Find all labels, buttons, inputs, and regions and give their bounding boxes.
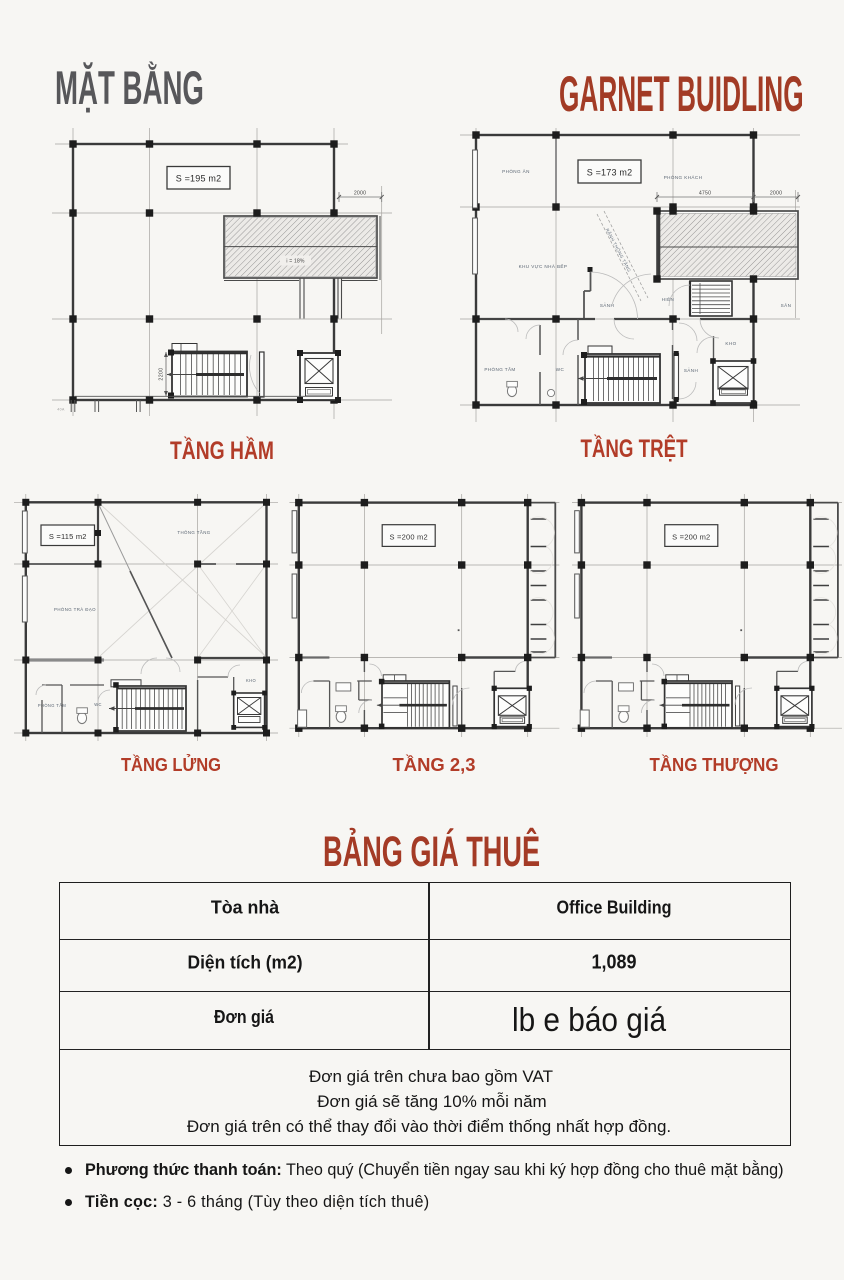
svg-text:WC: WC bbox=[94, 702, 102, 707]
svg-text:KHO: KHO bbox=[246, 678, 256, 683]
svg-text:THÔNG TẦNG: THÔNG TẦNG bbox=[177, 530, 210, 535]
svg-text:i = 18%: i = 18% bbox=[286, 259, 305, 265]
svg-text:WC: WC bbox=[556, 367, 565, 372]
svg-text:2000: 2000 bbox=[770, 191, 782, 197]
svg-text:PHÒNG KHÁCH: PHÒNG KHÁCH bbox=[664, 174, 703, 180]
svg-text:PHÒNG TẮM: PHÒNG TẮM bbox=[484, 365, 515, 372]
svg-text:RÃNH THÔNG TẦNG: RÃNH THÔNG TẦNG bbox=[605, 228, 632, 274]
svg-text:KHU VỰC NHÀ BẾP: KHU VỰC NHÀ BẾP bbox=[519, 263, 568, 269]
svg-text:4750: 4750 bbox=[699, 191, 711, 197]
svg-text:SÂN: SÂN bbox=[781, 302, 792, 308]
svg-text:40A: 40A bbox=[57, 408, 65, 412]
svg-text:2000: 2000 bbox=[354, 191, 366, 197]
svg-text:SẢNH: SẢNH bbox=[684, 367, 698, 373]
svg-text:2200: 2200 bbox=[159, 367, 165, 380]
svg-text:KHO: KHO bbox=[725, 341, 736, 346]
svg-text:S =115 m2: S =115 m2 bbox=[49, 532, 87, 541]
svg-text:PHÒNG ĂN: PHÒNG ĂN bbox=[502, 168, 530, 174]
svg-text:PHÒNG TRÀ ĐẠO: PHÒNG TRÀ ĐẠO bbox=[54, 607, 96, 612]
svg-text:S =195 m2: S =195 m2 bbox=[176, 174, 222, 184]
svg-text:HIÊN: HIÊN bbox=[662, 295, 675, 302]
svg-text:S =173 m2: S =173 m2 bbox=[587, 168, 633, 178]
